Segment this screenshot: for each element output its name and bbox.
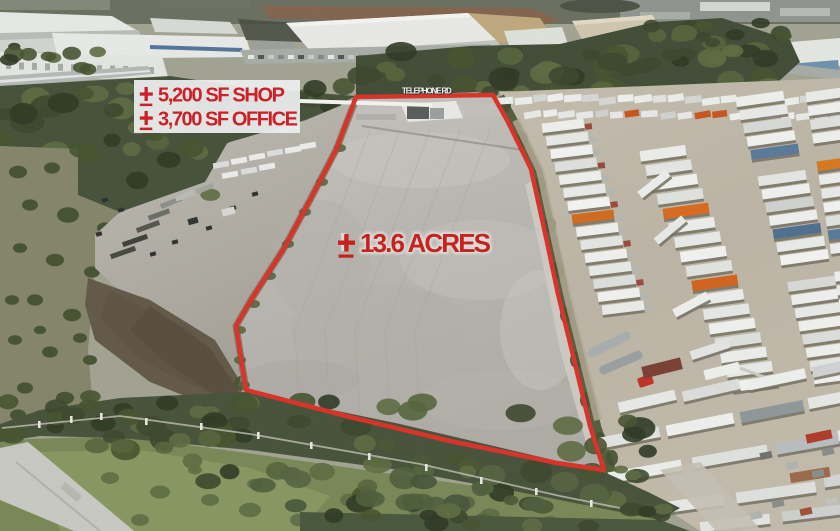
svg-text:13.6 ACRES: 13.6 ACRES <box>360 228 491 258</box>
svg-text:3,700 SF OFFICE: 3,700 SF OFFICE <box>158 109 298 131</box>
svg-text:TELEPHONE RD: TELEPHONE RD <box>402 87 452 96</box>
svg-text:5,200 SF SHOP: 5,200 SF SHOP <box>158 85 285 107</box>
